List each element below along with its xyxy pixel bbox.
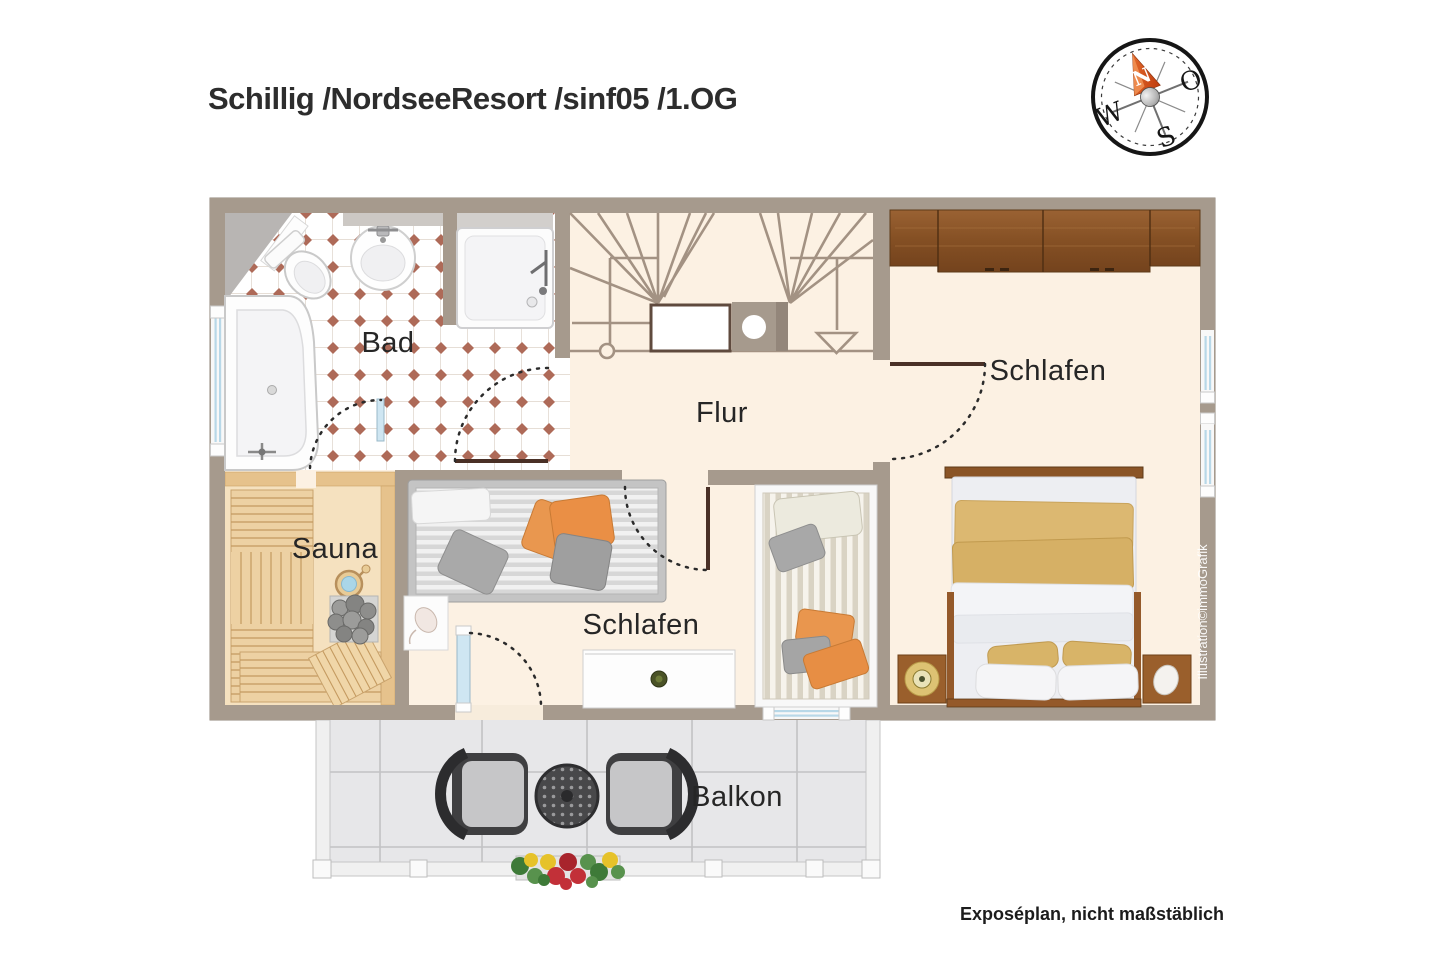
double-bed [945,467,1143,707]
mirror-shelf [343,213,443,226]
room-label-schlafen-bottom: Schlafen [583,609,700,641]
room-label-balkon: Balkon [691,781,783,813]
floorplan-canvas: Schillig /NordseeResort /sinf05 /1.OG [0,0,1440,960]
dresser [583,650,735,708]
room-label-schlafen-top: Schlafen [990,355,1107,387]
single-bed [755,485,877,707]
wall-stairs-bedroom [873,213,890,360]
footer-note: Exposéplan, nicht maßstäblich [960,904,1224,924]
bathtub [225,296,318,470]
shower [457,213,553,328]
watermark-text: Illustration©immoGrafik [1195,544,1210,680]
page-title: Schillig /NordseeResort /sinf05 /1.OG [208,81,737,116]
nightstand-left [898,655,946,703]
daybed [408,480,666,602]
balcony-chair-left [441,753,528,835]
window-left [211,306,225,456]
sauna-room [225,470,395,708]
room-label-sauna: Sauna [292,533,379,565]
window-right-lower [1201,424,1215,497]
balcony [313,720,880,890]
balcony-table [536,765,598,827]
wall-bath-stairs [555,213,570,358]
balcony-chair-right [606,753,693,835]
wall-left [210,213,225,705]
wardrobe [890,210,1200,272]
sink [351,226,415,290]
daybed-pillow-gray-right [549,533,613,592]
side-table [404,596,448,650]
room-label-flur: Flur [696,397,748,429]
sauna-stones [328,595,378,644]
wall-sauna-bedroom [395,470,409,705]
nightstand-right [1143,655,1191,703]
wall-hall-bedroom-right [708,470,873,485]
room-label-bad: Bad [361,327,414,359]
sauna-door-opening [296,470,316,488]
wall-shower-stub [443,213,457,325]
stair-landing [651,305,730,351]
daybed-pillow-white [411,488,491,524]
